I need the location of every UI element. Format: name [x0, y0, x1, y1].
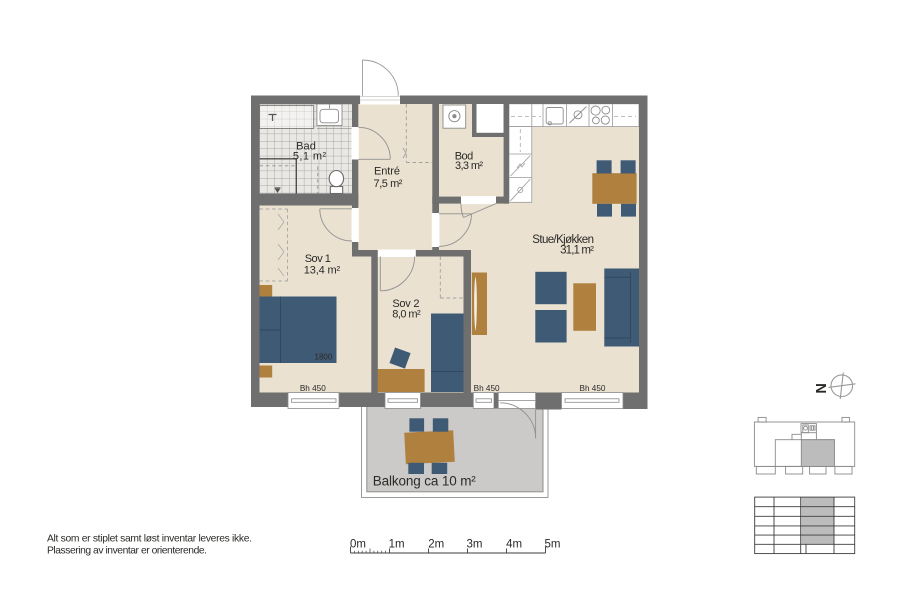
svg-text:Balkong ca 10 m²: Balkong ca 10 m² — [373, 473, 477, 488]
svg-text:1m: 1m — [389, 539, 405, 551]
svg-text:5m: 5m — [545, 539, 561, 551]
svg-text:2m: 2m — [428, 539, 444, 551]
svg-text:Bh 450: Bh 450 — [474, 384, 500, 393]
svg-text:N: N — [812, 383, 828, 393]
svg-text:Plassering av inventar er orie: Plassering av inventar er orienterende. — [47, 546, 207, 557]
svg-text:7,5 m²: 7,5 m² — [374, 178, 403, 190]
svg-text:13,4 m²: 13,4 m² — [304, 265, 341, 277]
svg-text:Bh 450: Bh 450 — [580, 384, 606, 393]
svg-text:3m: 3m — [467, 539, 483, 551]
svg-text:Entré: Entré — [374, 166, 400, 178]
svg-text:Alt som er stiplet samt løst i: Alt som er stiplet samt løst inventar le… — [47, 533, 252, 544]
svg-text:31,1 m²: 31,1 m² — [560, 245, 594, 257]
svg-text:4m: 4m — [506, 539, 522, 551]
svg-text:1800: 1800 — [315, 353, 333, 362]
svg-text:Bh 450: Bh 450 — [300, 384, 326, 393]
svg-text:0m: 0m — [350, 539, 366, 551]
svg-text:3,3 m²: 3,3 m² — [455, 160, 483, 172]
svg-text:Sov 1: Sov 1 — [305, 253, 331, 265]
svg-text:8,0 m²: 8,0 m² — [392, 309, 421, 321]
svg-text:5,1 m²: 5,1 m² — [293, 151, 327, 163]
